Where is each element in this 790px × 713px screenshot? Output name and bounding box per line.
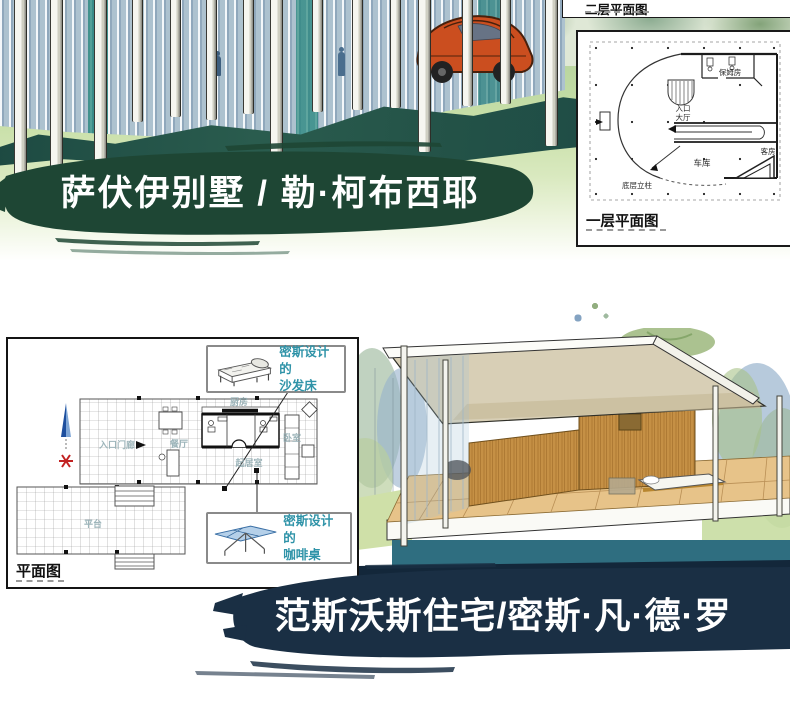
coffee-table-callout: 密斯设计的 咖啡桌 bbox=[206, 512, 352, 564]
living-label: 起居室 bbox=[234, 457, 262, 468]
caption-dashes bbox=[16, 580, 64, 582]
coffee-table-sketch bbox=[213, 518, 278, 558]
bedroom-label: 卧室 bbox=[283, 432, 301, 443]
pilotis-column bbox=[418, 0, 431, 152]
garage-label: 车库 bbox=[693, 158, 711, 168]
pilotis-column bbox=[243, 0, 254, 114]
second-floor-plan-label: 二层平面图 bbox=[585, 0, 648, 18]
guest-room-label: 客房 bbox=[761, 146, 776, 156]
spiral-stair bbox=[668, 80, 694, 105]
pilotis-column bbox=[390, 0, 401, 108]
caption-dashes bbox=[586, 229, 666, 231]
pilotis-column bbox=[462, 0, 473, 106]
first-floor-plan-label: 一层平面图 bbox=[586, 210, 659, 231]
service-core bbox=[202, 407, 279, 447]
pilotis-column bbox=[352, 0, 363, 110]
entrance-hall-label-2: 大厅 bbox=[676, 112, 691, 122]
ramp bbox=[668, 125, 764, 139]
sofa-callout-line2: 沙发床 bbox=[279, 378, 339, 395]
guest-room-stairs bbox=[736, 156, 774, 178]
pilotis-column bbox=[545, 0, 558, 146]
caption-dashes bbox=[585, 11, 649, 13]
farnsworth-plan-panel: 入口门廊 餐厅 厨房 卧室 起居室 平台 密斯设计的 沙发床 bbox=[6, 337, 359, 589]
entrance-porch-label: 入口门廊 bbox=[98, 439, 135, 450]
farnsworth-house-illustration bbox=[357, 328, 790, 580]
pilotis-column bbox=[170, 0, 181, 117]
page: 二层平面图 bbox=[0, 0, 790, 713]
pilotis-column bbox=[312, 0, 323, 112]
ground-columns-label: 底层立柱 bbox=[622, 180, 652, 190]
dining-label: 餐厅 bbox=[169, 438, 188, 449]
farnsworth-plan-label: 平面图 bbox=[16, 560, 61, 581]
farnsworth-banner: 范斯沃斯住宅/密斯·凡·德·罗 bbox=[75, 563, 790, 681]
glass-wall-left bbox=[407, 354, 471, 524]
villa-savoye-title: 萨伏伊别墅 / 勒·柯布西耶 bbox=[30, 172, 510, 216]
first-floor-plan-drawing: 保姆房 入口 大厅 车库 客房 底层立柱 bbox=[584, 38, 789, 206]
pilotis-column bbox=[500, 0, 511, 104]
pilotis-column bbox=[132, 0, 143, 122]
treetop-watercolor-mark bbox=[568, 298, 612, 328]
second-floor-plan-panel: 二层平面图 bbox=[562, 0, 790, 18]
entry-notch bbox=[596, 112, 610, 130]
table-callout-line1: 密斯设计的 bbox=[283, 513, 345, 547]
curved-glass-wall bbox=[618, 54, 681, 178]
maid-room-label: 保姆房 bbox=[719, 67, 742, 77]
table-callout-line2: 咖啡桌 bbox=[283, 547, 345, 564]
sofa-callout-line1: 密斯设计的 bbox=[279, 344, 339, 378]
first-floor-plan-panel: 保姆房 入口 大厅 车库 客房 底层立柱 一层平面图 bbox=[576, 30, 790, 247]
kitchen-label: 厨房 bbox=[230, 396, 248, 407]
dashed-curve bbox=[660, 178, 726, 185]
person-figure bbox=[338, 52, 345, 76]
farnsworth-title: 范斯沃斯住宅/密斯·凡·德·罗 bbox=[243, 593, 763, 639]
sofa-bed-sketch bbox=[213, 350, 274, 388]
pilotis-column bbox=[206, 0, 217, 120]
door-swing-arrow bbox=[650, 146, 680, 171]
entrance-hall-label-1: 入口 bbox=[676, 104, 691, 113]
terrace-label: 平台 bbox=[84, 518, 102, 529]
north-arrow bbox=[59, 403, 73, 467]
villa-savoye-banner: 萨伏伊别墅 / 勒·柯布西耶 bbox=[0, 138, 545, 256]
sofa-bed-callout: 密斯设计的 沙发床 bbox=[206, 345, 346, 393]
